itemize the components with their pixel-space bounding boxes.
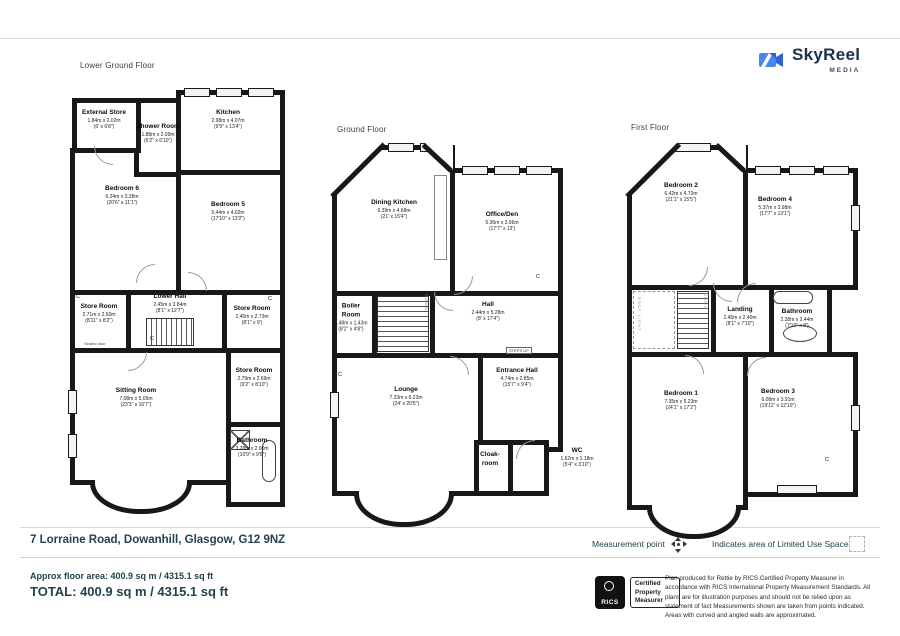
approx-floor-area: Approx floor area: 400.9 sq m / 4315.1 s… bbox=[30, 571, 213, 581]
footer-rule-top bbox=[20, 527, 880, 528]
top-rule bbox=[0, 38, 900, 39]
room-label-kitchen: Kitchen2.98m x 4.07m(9'9" x 13'4") bbox=[193, 109, 263, 131]
rics-wheel-icon bbox=[604, 581, 614, 591]
room-label-entrance-hall: Entrance Hall4.74m x 2.85m(15'7" x 9'4") bbox=[482, 367, 552, 389]
room-label-external-store: External Store1.84m x 2.02m(6' x 6'8") bbox=[74, 109, 134, 131]
room-label-dining-kitchen: Dining Kitchen6.39m x 4.68m(21' x 15'4") bbox=[354, 199, 434, 221]
room-label-bathroom: Bathroom2.38m x 2.44m(7'10" x 8') bbox=[770, 308, 824, 330]
room-name: Landing bbox=[713, 306, 767, 315]
room-name: Dining Kitchen bbox=[354, 199, 434, 208]
window bbox=[851, 405, 860, 431]
floorplan-first: ROOF LIGHT DOWN C Bedroom 26.42m x 4.70m… bbox=[625, 135, 857, 530]
roof-light-note: ROOF LIGHT bbox=[637, 297, 642, 331]
room-label-boiler-room: Boiler Room2.48m x 1.43m(8'2" x 4'8") bbox=[334, 303, 368, 334]
floor-title-ground: Ground Floor bbox=[337, 125, 387, 134]
room-label-store-room: Store Room2.71m x 2.50m(8'11" x 8'2") bbox=[69, 303, 129, 325]
room-name: Office/Den bbox=[467, 211, 537, 220]
bay-window-lounge bbox=[354, 491, 454, 527]
room-dimensions: (8' x 17'4") bbox=[453, 316, 523, 323]
room-name: Bedroom 1 bbox=[646, 390, 716, 399]
limited-use-swatch-icon bbox=[849, 536, 865, 552]
room-dimensions: (9'9" x 13'4") bbox=[193, 124, 263, 131]
logo-sub: MEDIA bbox=[792, 67, 860, 74]
room-dimensions: (23'3" x 16'7") bbox=[101, 402, 171, 409]
room-label-cloak-room: Cloak- room bbox=[476, 451, 504, 469]
window bbox=[68, 434, 77, 458]
window bbox=[823, 166, 849, 175]
footer-rule-bottom bbox=[20, 557, 880, 558]
room-label-office-den: Office/Den5.36m x 3.96m(17'7" x 13') bbox=[467, 211, 537, 233]
room-dimensions: (24'1" x 17'2") bbox=[646, 405, 716, 412]
room-label-store-room: Store Room2.45m x 2.73m(8'1" x 9') bbox=[224, 305, 280, 327]
floorplan-ground: STEPS UP DOWN C C Dining Kitchen6.39m x … bbox=[330, 140, 590, 525]
room-dimensions: (8'11" x 8'2") bbox=[69, 318, 129, 325]
room-name: Shower Room bbox=[131, 123, 185, 132]
floor-title-first: First Floor bbox=[631, 123, 669, 132]
room-dimensions: (21' x 15'4") bbox=[354, 214, 434, 221]
window bbox=[526, 166, 552, 175]
room-name: Cloak- room bbox=[476, 451, 504, 469]
window bbox=[494, 166, 520, 175]
room-label-lounge: Lounge7.33m x 6.23m(24' x 20'5") bbox=[371, 386, 441, 408]
room-name: Bathroom bbox=[770, 308, 824, 317]
room-dimensions: (5'4" x 3'10") bbox=[551, 462, 603, 469]
property-address: 7 Lorraine Road, Dowanhill, Glasgow, G12… bbox=[30, 534, 285, 546]
window bbox=[216, 88, 242, 97]
bay-window-bedroom-1 bbox=[647, 505, 741, 539]
stairs-ground bbox=[377, 296, 429, 352]
cupboard-marker: C bbox=[268, 296, 272, 302]
room-name: External Store bbox=[74, 109, 134, 118]
room-dimensions: (7'10" x 8') bbox=[770, 323, 824, 330]
floor-title-lower-ground: Lower Ground Floor bbox=[80, 61, 155, 70]
room-name: Boiler Room bbox=[334, 303, 368, 321]
down-note: DOWN bbox=[424, 294, 429, 311]
window bbox=[851, 205, 860, 231]
measurement-point-icon bbox=[671, 537, 687, 553]
room-dimensions: (6' x 6'8") bbox=[74, 124, 134, 131]
cupboard-marker: C bbox=[825, 457, 829, 463]
room-sitting-room bbox=[70, 348, 231, 485]
room-bedroom-4 bbox=[743, 168, 858, 290]
room-dimensions: (17'7" x 13'1") bbox=[740, 211, 810, 218]
bay-window-sitting-room bbox=[90, 480, 192, 514]
room-dimensions: (17'7" x 13') bbox=[467, 226, 537, 233]
disclaimer-text: Plan produced for Rettie by RICS Certifi… bbox=[665, 574, 877, 621]
room-name: Entrance Hall bbox=[482, 367, 552, 376]
room-label-bathroom: Bathroom3.28m x 2.90m(10'9" x 9'6") bbox=[224, 437, 280, 459]
room-dimensions: (6'2" x 6'10") bbox=[131, 138, 185, 145]
room-name: Bedroom 6 bbox=[87, 185, 157, 194]
cupboard-marker: C bbox=[536, 274, 540, 280]
bathtub bbox=[773, 291, 813, 304]
room-label-bedroom-2: Bedroom 26.42m x 4.70m(21'1" x 15'5") bbox=[646, 182, 716, 204]
skyreel-logo: SkyReel MEDIA bbox=[756, 46, 860, 74]
room-label-bedroom-3: Bedroom 36.08m x 3.91m(19'11" x 12'10") bbox=[740, 388, 816, 410]
room-name: Bedroom 5 bbox=[193, 201, 263, 210]
sealed-door-note: Sealed door bbox=[84, 341, 106, 346]
room-label-lower-hall: Lower Hall2.45m x 3.84m(8'1" x 12'7") bbox=[135, 293, 205, 315]
room-dimensions: (20'6" x 11'1") bbox=[87, 200, 157, 207]
window bbox=[184, 88, 210, 97]
room-name: Hall bbox=[453, 301, 523, 310]
room-name: Store Room bbox=[69, 303, 129, 312]
room-dimensions: (8'2" x 4'8") bbox=[334, 327, 368, 334]
window bbox=[388, 143, 414, 152]
floorplan-lower-ground: Sealed door C C C External Store1.84m x … bbox=[70, 90, 285, 540]
rics-logo: RICS bbox=[595, 576, 625, 609]
room-dimensions: (17'10" x 13'2") bbox=[193, 216, 263, 223]
room-name: Sitting Room bbox=[101, 387, 171, 396]
room-name: Lower Hall bbox=[135, 293, 205, 302]
room-dimensions: (24' x 20'5") bbox=[371, 401, 441, 408]
room-name: Store Room bbox=[226, 367, 282, 376]
floorplan-page: { "logo": { "brand": "SkyReel", "sub": "… bbox=[0, 0, 900, 636]
room-name: Store Room bbox=[224, 305, 280, 314]
steps-up-note: STEPS UP bbox=[506, 347, 532, 354]
room-dimensions: (21'1" x 15'5") bbox=[646, 197, 716, 204]
room-dimensions: (8'1" x 7'10") bbox=[713, 321, 767, 328]
room-dimensions: (15'7" x 9'4") bbox=[482, 382, 552, 389]
window bbox=[789, 166, 815, 175]
room-dimensions: (8'1" x 9') bbox=[224, 320, 280, 327]
measurement-point-label: Measurement point bbox=[592, 539, 665, 549]
room-dimensions: (9'2" x 8'10") bbox=[226, 382, 282, 389]
window bbox=[755, 166, 781, 175]
room-label-bedroom-1: Bedroom 17.35m x 5.23m(24'1" x 17'2") bbox=[646, 390, 716, 412]
cupboard-marker: C bbox=[338, 372, 342, 378]
room-label-landing: Landing2.45m x 2.40m(8'1" x 7'10") bbox=[713, 306, 767, 328]
room-label-wc: WC1.62m x 1.18m(5'4" x 3'10") bbox=[551, 447, 603, 469]
room-name: Bedroom 2 bbox=[646, 182, 716, 191]
room-label-bedroom-6: Bedroom 66.24m x 3.38m(20'6" x 11'1") bbox=[87, 185, 157, 207]
room-label-sitting-room: Sitting Room7.08m x 5.05m(23'3" x 16'7") bbox=[101, 387, 171, 409]
room-dimensions: (10'9" x 9'6") bbox=[224, 452, 280, 459]
window bbox=[462, 166, 488, 175]
room-label-bedroom-5: Bedroom 55.44m x 4.02m(17'10" x 13'2") bbox=[193, 201, 263, 223]
room-name: Bedroom 4 bbox=[740, 196, 810, 205]
kitchen-counter bbox=[434, 175, 447, 260]
room-label-store-room: Store Room2.79m x 2.69m(9'2" x 8'10") bbox=[226, 367, 282, 389]
room-label-shower-room: Shower Room1.88m x 2.09m(6'2" x 6'10") bbox=[131, 123, 185, 145]
cupboard-marker: C bbox=[76, 294, 80, 300]
window bbox=[68, 390, 77, 414]
room-name: Bathroom bbox=[224, 437, 280, 446]
room-name: WC bbox=[551, 447, 603, 456]
total-floor-area: TOTAL: 400.9 sq m / 4315.1 sq ft bbox=[30, 584, 228, 599]
room-label-bedroom-4: Bedroom 45.37m x 3.98m(17'7" x 13'1") bbox=[740, 196, 810, 218]
room-name: Bedroom 3 bbox=[740, 388, 816, 397]
room-kitchen bbox=[176, 90, 285, 175]
limited-use-label: Indicates area of Limited Use Space bbox=[712, 539, 849, 549]
window bbox=[330, 392, 339, 418]
cupboard-marker: C bbox=[150, 336, 154, 342]
room-label-hall: Hall2.44m x 5.28m(8' x 17'4") bbox=[453, 301, 523, 323]
room-name: Lounge bbox=[371, 386, 441, 395]
window bbox=[777, 485, 817, 494]
room-name: Kitchen bbox=[193, 109, 263, 118]
window bbox=[248, 88, 274, 97]
room-dimensions: (19'11" x 12'10") bbox=[740, 403, 816, 410]
logo-brand: SkyReel bbox=[792, 45, 860, 64]
skyreel-logo-icon bbox=[756, 46, 786, 74]
down-note: DOWN bbox=[703, 293, 708, 310]
room-bedroom-1 bbox=[627, 352, 748, 510]
room-dimensions: (8'1" x 12'7") bbox=[135, 308, 205, 315]
rics-name: RICS bbox=[595, 599, 625, 606]
